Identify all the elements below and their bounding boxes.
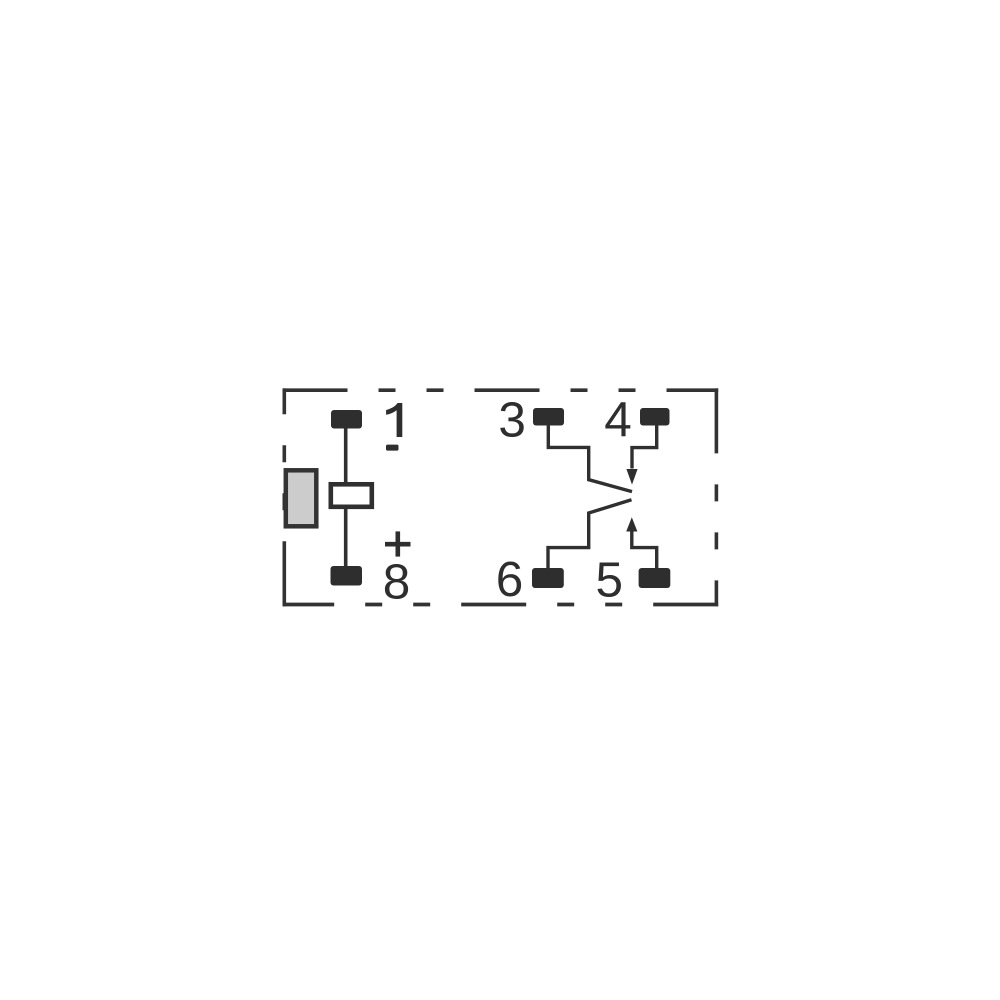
svg-text:8: 8 [383, 555, 411, 610]
svg-text:4: 4 [604, 392, 632, 447]
svg-text:5: 5 [596, 553, 624, 608]
svg-text:6: 6 [496, 552, 524, 607]
svg-text:3: 3 [498, 393, 526, 448]
